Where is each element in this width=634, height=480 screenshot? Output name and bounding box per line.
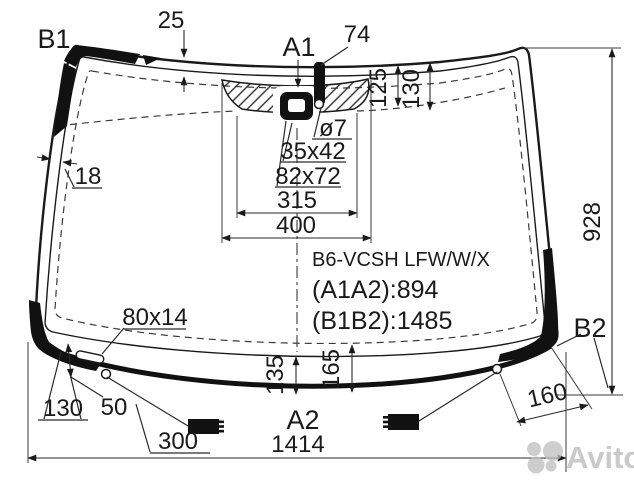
dim-shade-bottom: 315 bbox=[277, 187, 317, 214]
dim-opening: 82x72 bbox=[275, 163, 340, 190]
part-code: B6-VCSH LFW/W/X bbox=[312, 249, 490, 271]
mirror-mount-hole bbox=[288, 99, 305, 112]
watermark-brand: Avito bbox=[566, 440, 634, 475]
dim-height: 928 bbox=[579, 202, 606, 242]
dim-edge-gap: 50 bbox=[101, 394, 128, 421]
watermark-logo-circle bbox=[543, 441, 563, 461]
dim-slot: 80x14 bbox=[122, 304, 187, 331]
rain-sensor-strip bbox=[314, 62, 325, 105]
dim-inner-offset: 135 bbox=[262, 355, 289, 395]
left-hole bbox=[102, 370, 111, 379]
distance-b1b2: (B1B2):1485 bbox=[312, 307, 452, 335]
point-b2-label: B2 bbox=[573, 313, 606, 343]
dim-edge-band: 18 bbox=[75, 163, 102, 190]
point-a1-label: A1 bbox=[282, 32, 315, 62]
sensor-hole bbox=[315, 100, 324, 109]
dim-mount: 35x42 bbox=[280, 138, 345, 165]
point-b1-label: B1 bbox=[37, 24, 70, 54]
point-a2-label: A2 bbox=[286, 405, 319, 435]
dim-width: 1414 bbox=[271, 431, 324, 458]
dim-shade-top: 400 bbox=[276, 212, 316, 239]
dim-corner-hole: 160 bbox=[525, 378, 570, 413]
dim-band-bottom: 165 bbox=[318, 349, 345, 389]
watermark-logo-circle bbox=[546, 461, 557, 472]
dim-top-band: 25 bbox=[158, 7, 185, 34]
watermark-logo-circle bbox=[528, 457, 545, 474]
watermark-logo-circle bbox=[527, 442, 541, 456]
diagram-canvas: 25 A1 74 125 130 ø7 35x42 82x72 315 bbox=[0, 0, 634, 480]
windshield-technical-drawing: 25 A1 74 125 130 ø7 35x42 82x72 315 bbox=[0, 0, 634, 480]
dim-hole-offset: 300 bbox=[158, 428, 198, 455]
dim-sensor-strip: 74 bbox=[344, 21, 371, 48]
dim-band-right: 130 bbox=[398, 69, 425, 109]
distance-a1a2: (A1A2):894 bbox=[312, 276, 439, 304]
dim-band-left: 125 bbox=[365, 68, 392, 108]
dim-corner-slot: 130 bbox=[43, 395, 83, 422]
